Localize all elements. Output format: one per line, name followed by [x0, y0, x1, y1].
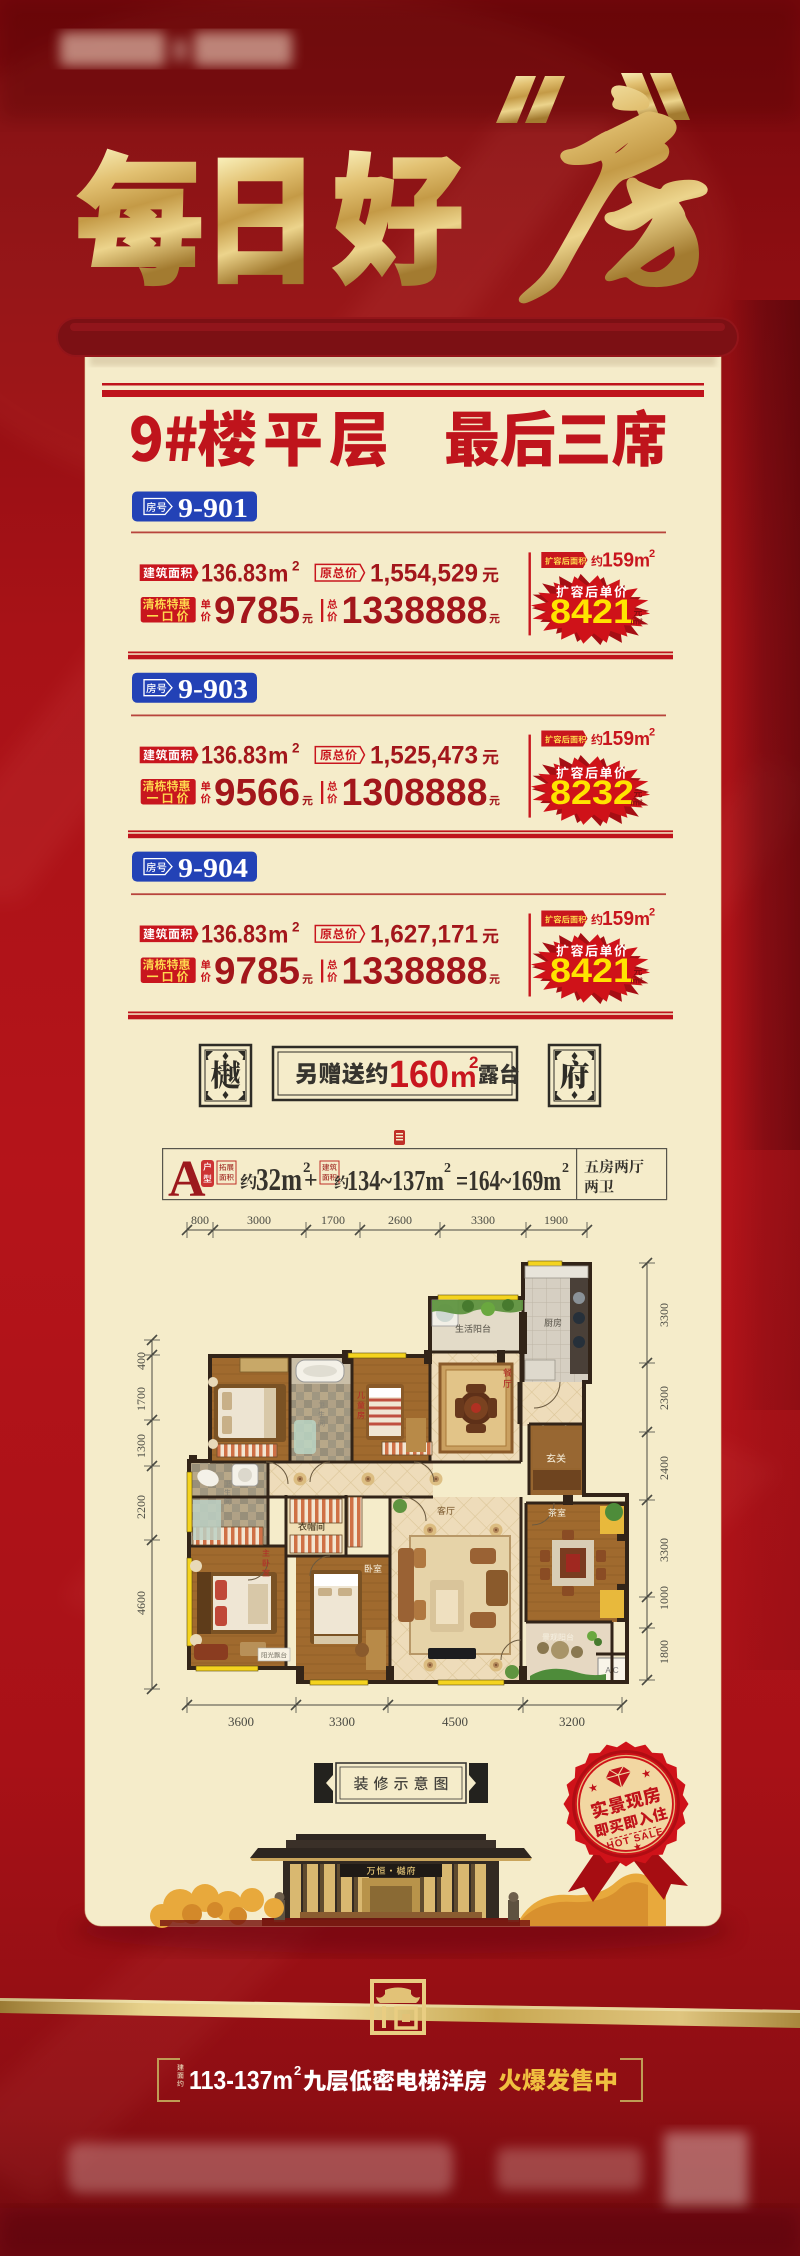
svg-text:3300: 3300 — [657, 1303, 671, 1327]
svg-text:8421: 8421 — [550, 952, 634, 990]
svg-text:3300: 3300 — [657, 1538, 671, 1562]
svg-text:9-903: 9-903 — [178, 674, 248, 704]
svg-text:2: 2 — [292, 920, 300, 935]
svg-text:2: 2 — [562, 1161, 569, 1176]
svg-text:2: 2 — [292, 558, 300, 573]
svg-text:136.83: 136.83 — [201, 921, 267, 949]
svg-text:159: 159 — [602, 728, 634, 750]
svg-text:9785: 9785 — [214, 951, 300, 993]
svg-text:2: 2 — [444, 1161, 451, 1176]
svg-text:1338888: 1338888 — [342, 951, 488, 993]
svg-text:32m: 32m — [256, 1161, 302, 1197]
svg-text:159: 159 — [602, 908, 634, 930]
svg-text:/m²: /m² — [631, 799, 643, 808]
svg-text:m: m — [268, 743, 288, 769]
svg-text:2: 2 — [649, 727, 655, 739]
svg-text:159: 159 — [602, 550, 634, 572]
svg-text:A: A — [168, 1151, 206, 1208]
svg-text:1700: 1700 — [321, 1213, 345, 1227]
svg-text:9566: 9566 — [214, 772, 300, 814]
svg-text:1700: 1700 — [134, 1387, 148, 1411]
svg-text:3000: 3000 — [247, 1213, 271, 1227]
svg-text:8421: 8421 — [550, 593, 634, 631]
svg-text:3600: 3600 — [228, 1714, 254, 1729]
svg-text:2: 2 — [649, 907, 655, 919]
svg-text:1800: 1800 — [657, 1640, 671, 1664]
svg-text:m: m — [268, 560, 288, 586]
svg-text:160: 160 — [389, 1054, 449, 1096]
svg-text:1338888: 1338888 — [342, 590, 488, 632]
svg-text:m: m — [634, 909, 650, 929]
svg-text:m: m — [268, 922, 288, 948]
svg-text:2600: 2600 — [388, 1213, 412, 1227]
svg-text:400: 400 — [134, 1352, 148, 1370]
svg-text:9785: 9785 — [214, 590, 300, 632]
svg-text:4600: 4600 — [134, 1591, 148, 1615]
svg-text:4500: 4500 — [442, 1714, 468, 1729]
svg-text:8232: 8232 — [550, 774, 634, 812]
svg-text:2: 2 — [469, 1053, 478, 1072]
svg-text:m: m — [634, 729, 650, 749]
svg-text:3200: 3200 — [559, 1714, 585, 1729]
svg-text:2200: 2200 — [134, 1495, 148, 1519]
svg-text:1300: 1300 — [134, 1434, 148, 1458]
svg-text:/m²: /m² — [631, 977, 643, 986]
svg-text:134~137m: 134~137m — [347, 1166, 444, 1197]
svg-text:+: + — [304, 1168, 318, 1194]
svg-text:800: 800 — [191, 1213, 209, 1227]
svg-text:2: 2 — [649, 548, 655, 560]
svg-text:113-137m: 113-137m — [189, 2065, 293, 2095]
svg-text:1308888: 1308888 — [342, 772, 488, 814]
svg-text:2: 2 — [294, 2063, 301, 2078]
svg-text:1,627,171: 1,627,171 — [370, 921, 478, 949]
svg-text:2300: 2300 — [657, 1386, 671, 1410]
svg-text:9-901: 9-901 — [178, 493, 248, 523]
svg-text:1000: 1000 — [657, 1586, 671, 1610]
svg-text:/m²: /m² — [631, 618, 643, 627]
svg-text:136.83: 136.83 — [201, 559, 267, 587]
svg-text:1,525,473: 1,525,473 — [370, 742, 478, 770]
svg-text:2400: 2400 — [657, 1456, 671, 1480]
svg-text:3300: 3300 — [471, 1213, 495, 1227]
svg-text:1,554,529: 1,554,529 — [370, 559, 478, 587]
svg-text:m: m — [634, 551, 650, 571]
svg-text:136.83: 136.83 — [201, 742, 267, 770]
svg-text:2: 2 — [292, 741, 300, 756]
svg-text:=164~169m: =164~169m — [456, 1166, 561, 1197]
svg-text:1900: 1900 — [544, 1213, 568, 1227]
svg-text:3300: 3300 — [329, 1714, 355, 1729]
svg-text:9-904: 9-904 — [178, 853, 248, 883]
